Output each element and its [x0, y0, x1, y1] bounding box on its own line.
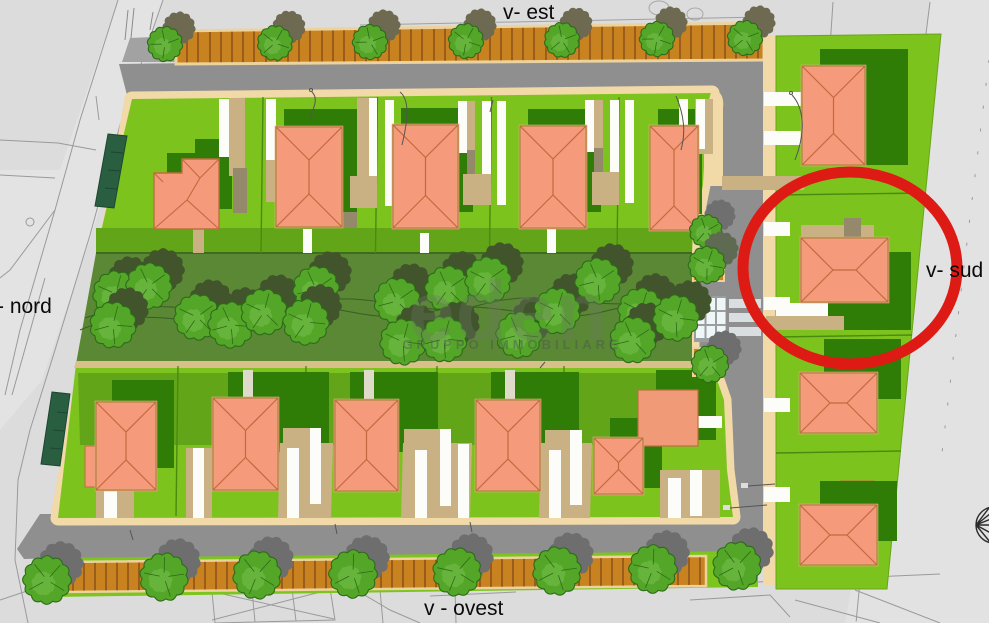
svg-text:v- est: v- est	[503, 1, 555, 24]
svg-text:- nord: - nord	[0, 295, 52, 318]
svg-text:v- sud: v- sud	[926, 259, 983, 282]
svg-text:v - ovest: v - ovest	[424, 597, 504, 620]
svg-text:GRUPPO IMMOBILIARE: GRUPPO IMMOBILIARE	[402, 337, 621, 352]
